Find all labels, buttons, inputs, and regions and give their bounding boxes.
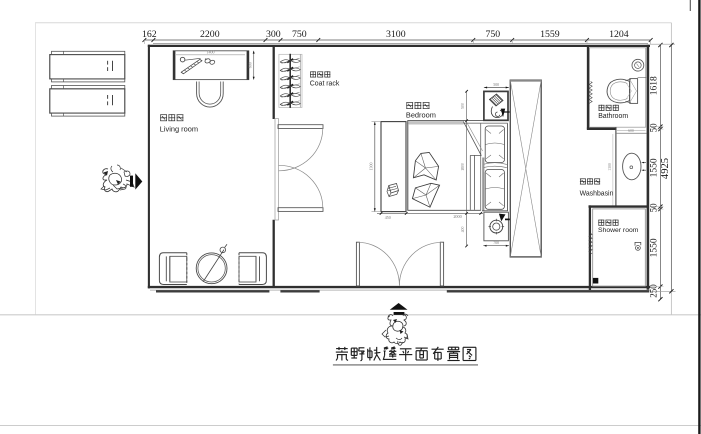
- svg-text:1550: 1550: [649, 238, 659, 257]
- svg-text:Bathroom: Bathroom: [598, 113, 628, 120]
- svg-text:Bedroom: Bedroom: [406, 111, 436, 120]
- svg-text:1300: 1300: [608, 163, 612, 171]
- svg-text:2000: 2000: [453, 214, 461, 219]
- svg-text:450: 450: [385, 215, 391, 220]
- svg-text:3100: 3100: [386, 29, 406, 40]
- svg-text:750: 750: [485, 29, 500, 40]
- svg-text:Coat rack: Coat rack: [310, 81, 340, 88]
- svg-text:400: 400: [461, 227, 465, 233]
- svg-text:500: 500: [493, 83, 499, 87]
- svg-text:250: 250: [648, 284, 658, 298]
- svg-text:700: 700: [493, 241, 499, 245]
- svg-text:Shower room: Shower room: [598, 227, 639, 234]
- svg-text:300: 300: [266, 29, 281, 40]
- svg-text:50: 50: [648, 123, 658, 132]
- svg-text:162: 162: [142, 29, 157, 40]
- svg-text:600: 600: [248, 62, 253, 68]
- svg-text:750: 750: [292, 29, 307, 40]
- svg-text:1800: 1800: [461, 163, 465, 171]
- svg-text:1400: 1400: [207, 50, 215, 55]
- svg-text:1559: 1559: [540, 29, 560, 40]
- svg-text:1204: 1204: [609, 29, 629, 40]
- svg-text:50: 50: [648, 203, 658, 213]
- svg-text:1550: 1550: [649, 158, 659, 177]
- svg-text:500: 500: [461, 103, 465, 109]
- svg-text:2200: 2200: [200, 29, 220, 40]
- svg-text:4925: 4925: [660, 158, 671, 179]
- svg-text:Living room: Living room: [160, 124, 198, 133]
- svg-text:Washbasin: Washbasin: [580, 190, 614, 197]
- svg-text:1300: 1300: [369, 163, 374, 171]
- svg-text:600: 600: [628, 129, 634, 133]
- svg-text:1618: 1618: [649, 76, 659, 95]
